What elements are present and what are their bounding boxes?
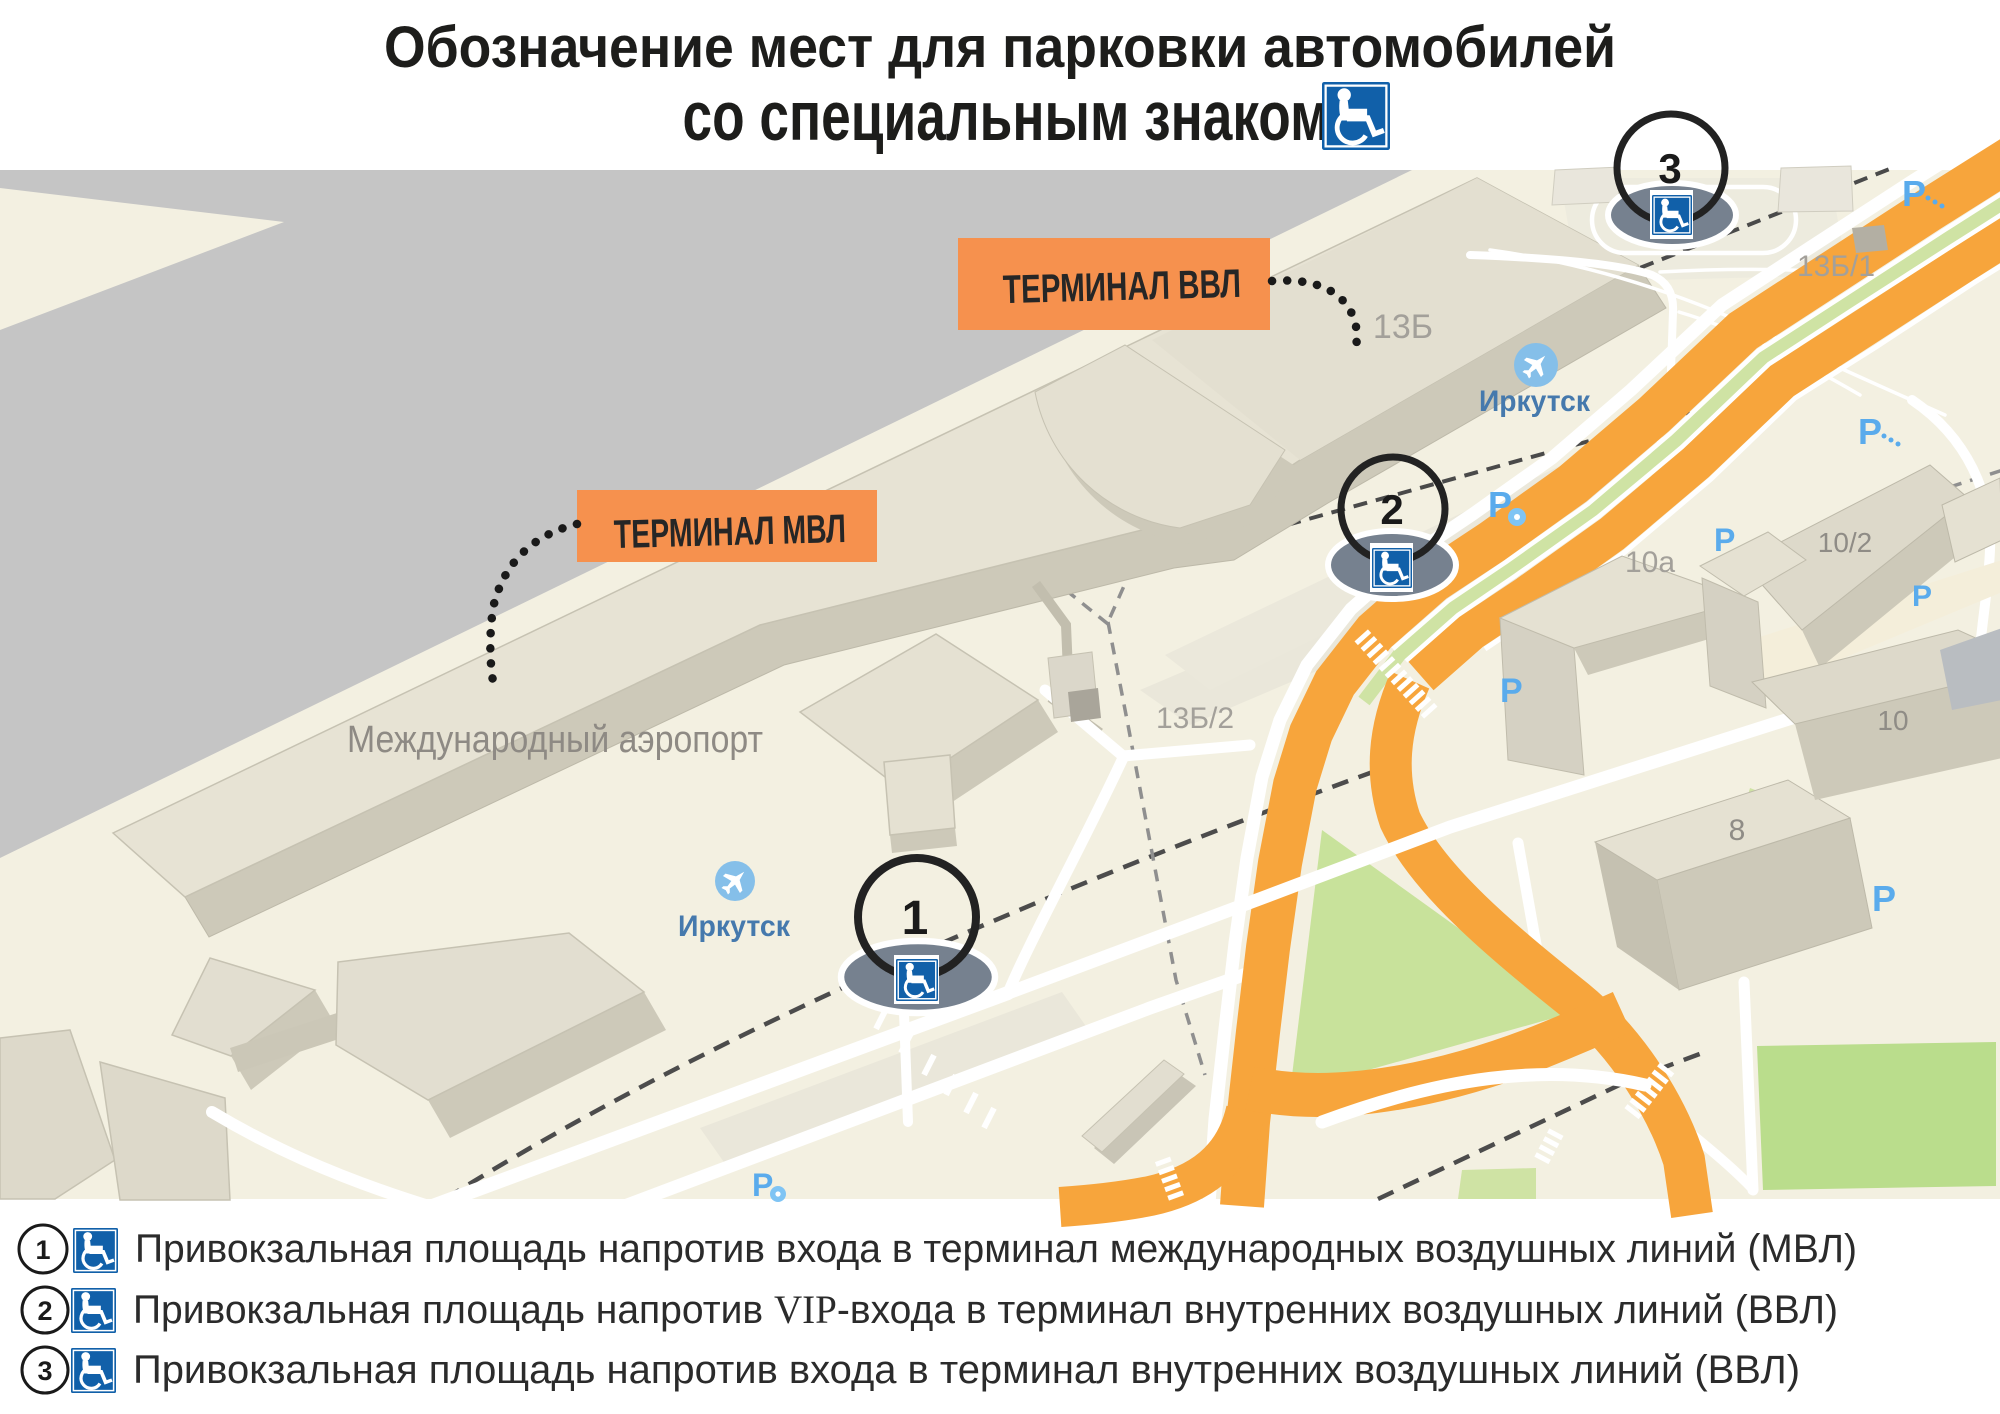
svg-text:ТЕРМИНАЛ МВЛ: ТЕРМИНАЛ МВЛ xyxy=(613,507,846,557)
svg-text:1: 1 xyxy=(902,892,929,945)
svg-text:8: 8 xyxy=(1729,814,1746,847)
svg-text:P: P xyxy=(1714,522,1735,558)
svg-text:Привокзальная площадь напротив: Привокзальная площадь напротив VIP-входа… xyxy=(133,1287,1838,1332)
svg-text:13Б: 13Б xyxy=(1373,308,1433,346)
svg-text:2: 2 xyxy=(1380,486,1403,533)
svg-text:13Б/1: 13Б/1 xyxy=(1797,250,1875,283)
svg-text:10а: 10а xyxy=(1625,546,1675,579)
svg-text:Привокзальная площадь напротив: Привокзальная площадь напротив входа в т… xyxy=(135,1227,1857,1271)
svg-text:P: P xyxy=(1902,173,1926,214)
svg-text:Привокзальная площадь напротив: Привокзальная площадь напротив входа в т… xyxy=(133,1348,1800,1392)
svg-text:1: 1 xyxy=(35,1235,50,1265)
svg-text:2: 2 xyxy=(37,1296,52,1326)
svg-text:3: 3 xyxy=(1658,145,1681,192)
svg-text:10/2: 10/2 xyxy=(1818,527,1873,558)
svg-text:13Б/2: 13Б/2 xyxy=(1156,702,1234,735)
svg-text:P: P xyxy=(1858,411,1882,452)
svg-text:ТЕРМИНАЛ ВВЛ: ТЕРМИНАЛ ВВЛ xyxy=(1002,262,1241,312)
svg-text:Иркутск: Иркутск xyxy=(1479,385,1591,418)
svg-text:P: P xyxy=(1500,672,1523,710)
svg-text:Иркутск: Иркутск xyxy=(678,910,791,943)
svg-text:P: P xyxy=(752,1167,773,1203)
svg-text:Международный аэропорт: Международный аэропорт xyxy=(347,719,763,761)
svg-text:со специальным знаком: со специальным знаком xyxy=(683,77,1330,155)
svg-text:3: 3 xyxy=(37,1356,52,1386)
svg-text:P: P xyxy=(1912,580,1932,613)
svg-text:Обозначение мест для парковки: Обозначение мест для парковки автомобиле… xyxy=(384,15,1616,80)
svg-text:10: 10 xyxy=(1877,705,1908,736)
svg-text:P: P xyxy=(1872,878,1896,919)
